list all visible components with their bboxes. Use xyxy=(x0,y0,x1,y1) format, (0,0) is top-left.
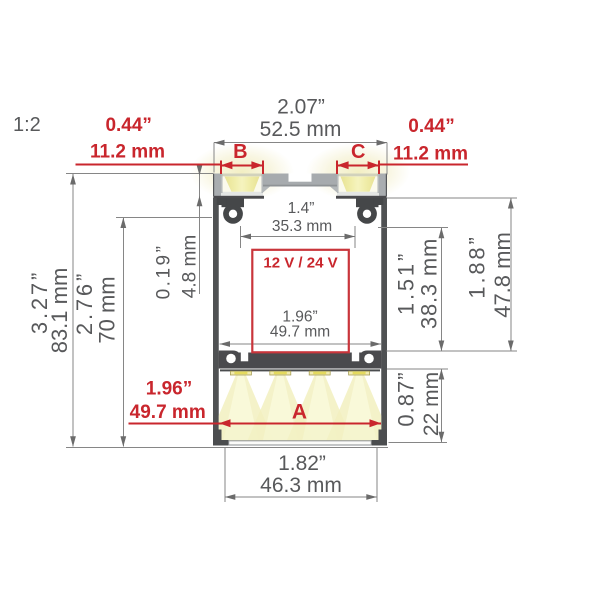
svg-text:46.3 mm: 46.3 mm xyxy=(260,474,342,497)
svg-text:1.96”: 1.96” xyxy=(146,379,192,400)
svg-text:49.7 mm: 49.7 mm xyxy=(270,324,330,341)
svg-text:11.2 mm: 11.2 mm xyxy=(90,142,165,163)
svg-text:2.07”: 2.07” xyxy=(277,96,325,119)
svg-text:22 mm: 22 mm xyxy=(420,372,443,436)
svg-text:83.1 mm: 83.1 mm xyxy=(47,268,72,354)
svg-text:A: A xyxy=(292,401,307,424)
svg-text:4.8 mm: 4.8 mm xyxy=(180,235,201,298)
svg-text:35.3 mm: 35.3 mm xyxy=(272,218,332,235)
svg-text:12 V / 24 V: 12 V / 24 V xyxy=(263,255,337,272)
svg-text:C: C xyxy=(351,141,365,163)
svg-text:49.7 mm: 49.7 mm xyxy=(130,402,206,423)
svg-text:1.4”: 1.4” xyxy=(288,200,315,217)
svg-text:B: B xyxy=(233,141,247,163)
svg-text:52.5 mm: 52.5 mm xyxy=(260,118,342,141)
svg-text:1.82”: 1.82” xyxy=(278,452,326,475)
svg-text:0.19”: 0.19” xyxy=(154,244,175,300)
svg-text:47.8 mm: 47.8 mm xyxy=(490,232,515,318)
svg-text:2.76”: 2.76” xyxy=(72,271,97,335)
svg-text:11.2 mm: 11.2 mm xyxy=(393,144,468,165)
svg-text:38.3 mm: 38.3 mm xyxy=(417,238,442,329)
svg-text:0.87”: 0.87” xyxy=(393,371,418,426)
svg-text:70 mm: 70 mm xyxy=(95,276,120,343)
svg-text:1.88”: 1.88” xyxy=(465,234,490,298)
svg-text:0.44”: 0.44” xyxy=(408,116,454,137)
svg-text:1.51”: 1.51” xyxy=(394,251,419,315)
svg-text:1:2: 1:2 xyxy=(13,114,41,136)
svg-text:0.44”: 0.44” xyxy=(105,115,151,136)
